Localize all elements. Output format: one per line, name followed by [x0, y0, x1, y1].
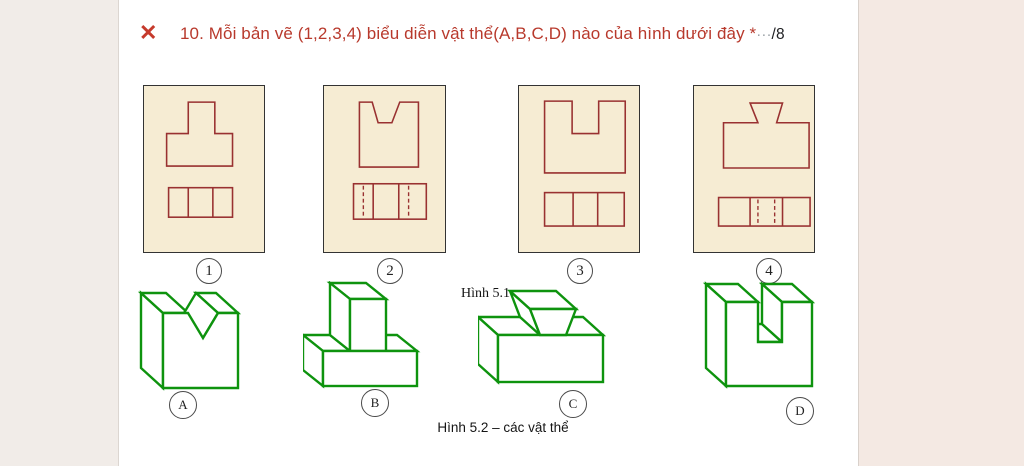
- object-letter-a: A: [169, 391, 197, 419]
- drawing-3-views: [519, 86, 639, 252]
- orthographic-panel-4: [693, 85, 815, 253]
- object-letter-c: C: [559, 390, 587, 418]
- figure-5-2-caption: Hình 5.2 – các vật thể: [398, 420, 608, 435]
- right-margin-band: [858, 0, 1024, 466]
- orthographic-panel-3: [518, 85, 640, 253]
- score-ellipsis: ···: [756, 26, 771, 43]
- left-margin-band: [0, 0, 119, 466]
- drawing-number-1: 1: [196, 258, 222, 284]
- object-letter-b: B: [361, 389, 389, 417]
- object-d-cube-u-slot: [698, 276, 838, 396]
- orthographic-panel-2: [323, 85, 446, 253]
- wrong-answer-x-icon: ✕: [139, 20, 157, 46]
- orthographic-panel-1: [143, 85, 265, 253]
- object-letter-d: D: [786, 397, 814, 425]
- quiz-question-page: ✕ 10. Mỗi bản vẽ (1,2,3,4) biểu diễn vật…: [0, 0, 1024, 466]
- object-a-cube-v-groove: [133, 283, 263, 398]
- object-c-block-dovetail-tenon: [478, 277, 613, 387]
- question-text: 10. Mỗi bản vẽ (1,2,3,4) biểu diễn vật t…: [180, 24, 750, 43]
- question-title: 10. Mỗi bản vẽ (1,2,3,4) biểu diễn vật t…: [180, 24, 785, 44]
- drawing-4-views: [694, 86, 814, 252]
- drawing-1-views: [144, 86, 264, 252]
- object-b-t-block: [303, 281, 433, 396]
- question-score: /8: [772, 26, 785, 43]
- drawing-2-views: [324, 86, 445, 252]
